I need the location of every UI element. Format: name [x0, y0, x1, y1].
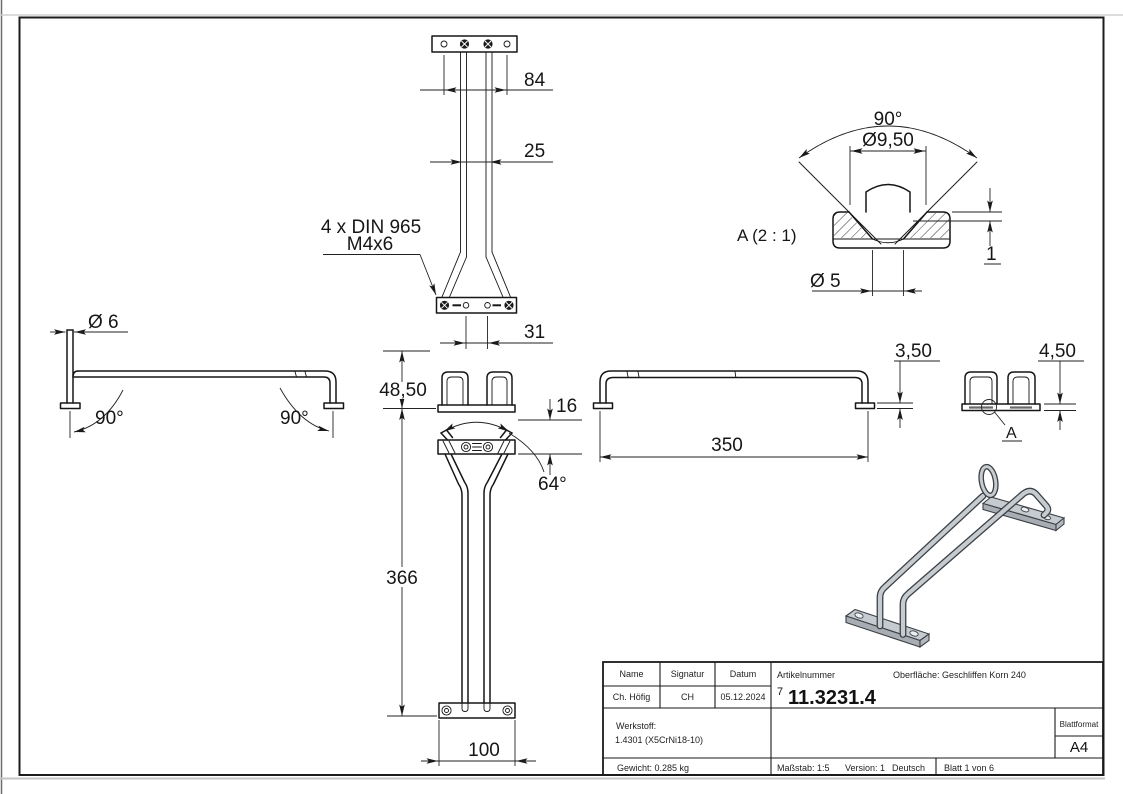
- right-view-geometry: [594, 371, 875, 409]
- drawing-sheet: 84 25 4 x DIN 965 M4x6 31: [0, 0, 1123, 794]
- isometric-wire-rods: [880, 466, 1048, 635]
- tb-name-value: Ch. Höfig: [613, 692, 651, 702]
- view-rear: 84 25 4 x DIN 965 M4x6 31: [321, 36, 553, 349]
- view-side-left: Ø 6 90° 90°: [50, 312, 344, 438]
- tb-material-label: Werkstoff:: [616, 721, 656, 731]
- left-view-geometry: [61, 330, 344, 409]
- view-side-right: 350 3,50: [594, 341, 941, 462]
- tb-material-value: 1.4301 (X5CrNi18-10): [615, 735, 703, 745]
- title-block: Name Signatur Datum Ch. Höfig CH 05.12.2…: [603, 662, 1103, 775]
- tb-article-label: Artikelnummer: [777, 670, 835, 680]
- tb-format-value: A4: [1070, 739, 1088, 756]
- note-din-line2: M4x6: [347, 234, 393, 255]
- tb-article-number: 11.3231.4: [788, 687, 877, 709]
- rail-end-geometry: [962, 372, 1040, 411]
- dim-3-50-label: 3,50: [895, 341, 932, 362]
- view-detail-a: 90° Ø9,50 1 Ø 5 A (2 : 1): [737, 109, 1002, 296]
- dim-dia5-label: Ø 5: [810, 271, 841, 292]
- view-rail-end: A 4,50: [962, 341, 1084, 442]
- tb-language-label: Deutsch: [892, 763, 925, 773]
- dim-350-label: 350: [711, 435, 743, 456]
- dim-1-label: 1: [986, 244, 997, 265]
- tb-surface-label: Oberfläche: Geschliffen Korn 240: [893, 670, 1026, 680]
- tb-signature-value: CH: [681, 692, 694, 702]
- tb-date-value: 05.12.2024: [720, 692, 765, 702]
- dim-90deg-countersink-label: 90°: [874, 109, 903, 130]
- tb-date-label: Datum: [730, 669, 757, 679]
- detail-a-title: A (2 : 1): [737, 226, 797, 245]
- tb-format-label: Blattformat: [1060, 720, 1099, 729]
- tb-signature-label: Signatur: [671, 669, 705, 679]
- dim-84-label: 84: [524, 70, 546, 91]
- tb-version-label: Version: 1: [845, 763, 885, 773]
- rail-loops-center-geometry: [438, 372, 515, 412]
- dim-4-50-label: 4,50: [1039, 341, 1076, 362]
- dim-64deg-label: 64°: [538, 474, 567, 495]
- detail-a-geometry: [799, 162, 977, 248]
- isometric-lower-plate: [846, 610, 929, 648]
- dim-31-label: 31: [524, 322, 545, 343]
- head-view-geometry: [438, 430, 515, 718]
- right-view-dimensions: 350 3,50: [600, 341, 940, 462]
- view-front: 48,50 64° 16 366 100: [379, 351, 582, 766]
- dim-25-label: 25: [524, 141, 545, 162]
- tb-scale-label: Maßstab: 1:5: [777, 763, 830, 773]
- tb-name-label: Name: [619, 669, 643, 679]
- dim-dia9-50-label: Ø9,50: [862, 130, 914, 151]
- tb-weight-label: Gewicht: 0.285 kg: [617, 763, 689, 773]
- detail-a-dimensions: 90° Ø9,50 1 Ø 5 A (2 : 1): [737, 109, 1002, 296]
- tb-article-prefix: 7: [777, 686, 783, 698]
- dim-90deg-left-label: 90°: [95, 408, 124, 429]
- detail-a-marker-label: A: [1006, 425, 1017, 442]
- dim-90deg-right-label: 90°: [280, 408, 309, 429]
- dim-366-label: 366: [386, 568, 418, 589]
- view-isometric: [846, 466, 1064, 647]
- dim-100-label: 100: [468, 740, 500, 761]
- dim-48-50-label: 48,50: [379, 380, 427, 401]
- left-view-dimensions: Ø 6 90° 90°: [50, 312, 333, 438]
- view-rear-geometry: [432, 36, 517, 313]
- dim-dia6-label: Ø 6: [88, 312, 119, 333]
- dim-16-label: 16: [556, 396, 577, 417]
- tb-sheet-label: Blatt 1 von 6: [944, 763, 994, 773]
